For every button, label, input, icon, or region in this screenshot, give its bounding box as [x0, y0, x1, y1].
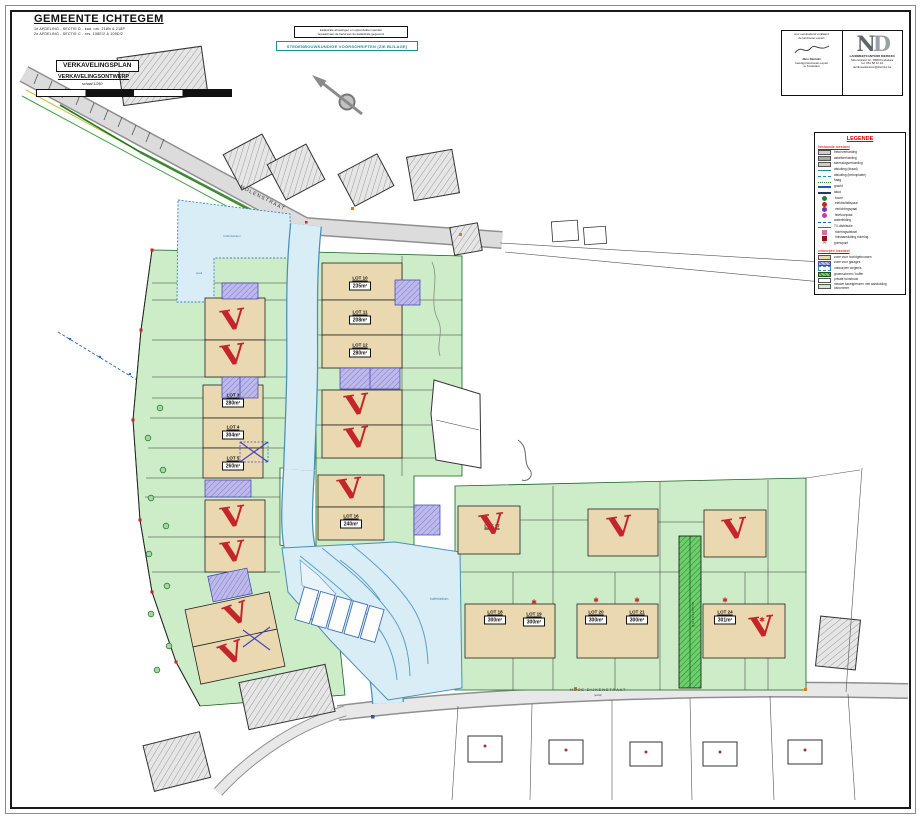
asterisk-mark: ✱ — [634, 597, 640, 605]
lot-area-value: 280m² — [222, 399, 243, 408]
legend-label: grenspunt — [834, 242, 848, 246]
sw-tan-symbol — [818, 162, 831, 167]
ln-brown-symbol — [818, 227, 831, 228]
surveyor-box: voor eensluidend verklaard, de landmeter… — [781, 30, 903, 96]
sw-lightgreen-symbol — [818, 284, 831, 289]
legend-title: LEGENDE — [818, 136, 902, 142]
legend-existing-title: bestaande toestand — [818, 145, 902, 149]
legend-label: telefoonpaal — [835, 214, 852, 218]
legend-existing-rows: betonverhardingasfaltverhardingsteenslag… — [818, 150, 902, 247]
lot-label: LOT 5 — [227, 456, 240, 461]
lot-area-value: 260m² — [222, 462, 243, 471]
surveyor-line: te Koekelare — [783, 65, 841, 69]
legend-label: afsluiting (draad) — [834, 168, 858, 172]
subdivision-plan-sheet: MOLENSTRAAT HOGE DIJKENSTRAAT (asfalt) b… — [0, 0, 921, 819]
cadastral-note-line-2: bepaald aan de hand van de kadastrale ge… — [297, 32, 405, 36]
legend-proposed-title: ontworpen toestand — [818, 249, 902, 253]
lot-area-value: 300m² — [585, 616, 606, 625]
lots-layer: VVLOT 3280m²LOT 4304m²LOT 5260m²VVVVLOT … — [0, 0, 921, 819]
lot-label: LOT 21 — [629, 610, 644, 615]
lot-label: LOT 19 — [526, 612, 541, 617]
lot-lot-12[interactable]: LOT 12280m² — [345, 343, 375, 358]
sw-beige-symbol — [818, 255, 831, 260]
scale-bar — [36, 89, 232, 97]
lot-lot-20[interactable]: LOT 20300m²✱ — [581, 610, 611, 625]
dot-red-symbol — [822, 202, 827, 207]
sold-mark: V — [220, 594, 254, 633]
legend: LEGENDE bestaande toestand betonverhardi… — [814, 132, 906, 295]
lot-label: LOT 20 — [588, 610, 603, 615]
legend-label: ontworpen wegenis — [834, 267, 861, 271]
lot-label: LOT 10 — [352, 276, 367, 281]
cadastral-line-2: 2e AFDELING - SECTIE C - nrs. 138E/2 & 1… — [34, 32, 244, 36]
lot-label: LOT 12 — [352, 343, 367, 348]
legend-label: betonverharding — [834, 151, 857, 155]
legend-label: zone voor hoofdgebouwen — [834, 256, 872, 260]
sold-mark: V — [219, 337, 248, 373]
legend-label: waterleiding — [834, 219, 851, 223]
legend-label: gracht — [834, 185, 843, 189]
plan-type-label: VERKAVELINGSPLAN — [56, 60, 139, 72]
lot-lot-16[interactable]: LOT 16240m² — [336, 514, 366, 529]
lot-lot-8[interactable]: V — [222, 613, 251, 619]
x-red-symbol — [821, 241, 828, 246]
sold-mark: V — [343, 420, 372, 456]
legend-proposed-rows: zone voor hoofdgebouwenzone voor garages… — [818, 255, 902, 291]
ln-blue-dot-symbol — [818, 222, 831, 223]
sold-mark: V — [215, 633, 249, 672]
lot-lot-21[interactable]: LOT 21300m²✱ — [622, 610, 652, 625]
asterisk-mark: ✱ — [531, 599, 537, 607]
lot-label: LOT 16 — [343, 514, 358, 519]
sold-mark: V — [606, 509, 635, 545]
lot-label: LOT 3 — [227, 393, 240, 398]
legend-label: asfaltverharding — [834, 157, 857, 161]
ln-green-scallop-symbol — [818, 182, 831, 183]
lot-area-value: 240m² — [340, 520, 361, 529]
title-block: GEMEENTE ICHTEGEM 1e AFDELING - SECTIE D… — [34, 13, 244, 97]
plan-subtitle: VERKAVELINGSONTWERP — [58, 74, 244, 80]
lot-lot-3[interactable]: LOT 3280m² — [218, 393, 248, 408]
lot-area-value: 280m² — [349, 349, 370, 358]
lot-area-value: 300m² — [626, 616, 647, 625]
legend-label: verlichtingspaal — [835, 208, 857, 212]
sw-purple-symbol — [818, 261, 831, 266]
sold-mark: V — [748, 609, 777, 645]
sw-white-symbol — [818, 278, 831, 283]
lot-lot-9[interactable]: V — [217, 652, 246, 658]
sw-greenhatch-symbol — [818, 272, 831, 277]
legend-label: TV-distributie — [834, 225, 853, 229]
surveyor-signature-cell: voor eensluidend verklaard, de landmeter… — [782, 31, 842, 95]
legend-label: haag — [834, 179, 841, 183]
legend-label: boom — [835, 197, 843, 201]
sold-mark: V — [343, 387, 372, 423]
lot-lot-24[interactable]: LOT 24301m²✱ — [710, 610, 740, 625]
asterisk-mark: ✱ — [722, 597, 728, 605]
lot-lot-11[interactable]: LOT 11208m² — [345, 310, 375, 325]
scale-label: schaal 1/250 — [82, 82, 244, 86]
office-email: landmeetkantoor@dierickx.be — [844, 66, 902, 70]
lot-lot-18[interactable]: LOT 18300m² — [480, 610, 510, 625]
legend-label: nieuwe kavelgrenzen met aanduiding lotnu… — [834, 283, 902, 290]
ln-blue-double-symbol — [818, 186, 831, 188]
sw-gray-symbol — [818, 150, 831, 155]
cadastral-note: kadastrale afmetingen en oppervlakten we… — [294, 26, 408, 38]
lot-area-value: 235m² — [349, 282, 370, 291]
dot-green-symbol — [822, 196, 827, 201]
signature-icon — [792, 41, 832, 57]
sold-mark: V — [219, 302, 248, 338]
lot-label: LOT 18 — [487, 610, 502, 615]
ln-teal-symbol — [818, 170, 831, 171]
lot-label: LOT 24 — [717, 610, 732, 615]
legend-label: groenscherm / buffer — [834, 273, 863, 277]
lot-label: LOT 4 — [227, 425, 240, 430]
regulations-note: STEDENBOUWKUNDIGE VOORSCHRIFTEN (ZIE BIJ… — [276, 41, 418, 51]
lot-lot-17[interactable]: LOT 17V — [477, 524, 507, 529]
lot-lot-4[interactable]: LOT 4304m² — [218, 425, 248, 440]
ln-navy-symbol — [818, 192, 831, 194]
asterisk-mark: ✱ — [593, 597, 599, 605]
sold-mark: V — [219, 499, 248, 535]
municipality-title: GEMEENTE ICHTEGEM — [34, 13, 244, 25]
sw-bluedash-symbol — [818, 266, 831, 271]
legend-label: elektriciteitspaal — [835, 202, 858, 206]
lot-area-value: 208m² — [349, 316, 370, 325]
lot-lot-10[interactable]: LOT 10235m² — [345, 276, 375, 291]
sold-mark: V — [336, 471, 365, 507]
legend-label: steenslagverharding — [834, 162, 863, 166]
legend-label: zone voor garages — [834, 261, 860, 265]
sw-darkgray-symbol — [818, 156, 831, 161]
sold-mark: V — [721, 511, 750, 547]
lot-label: LOT 11 — [352, 310, 367, 315]
asterisk-mark: ✱ — [759, 616, 765, 624]
cadastral-line-1: 1e AFDELING - SECTIE D - kad. nrs. 218N … — [34, 27, 244, 31]
surveyor-line: de landmeter-expert: — [783, 37, 841, 41]
lot-area-value: 300m² — [484, 616, 505, 625]
ln-teal-dash-symbol — [818, 176, 831, 177]
lot-area-value: 300m² — [523, 618, 544, 627]
lot-lot-19[interactable]: LOT 19300m²✱ — [519, 612, 549, 627]
legend-label: rioleringsdeksel — [835, 231, 857, 235]
legend-label: talud — [834, 191, 841, 195]
sq-pink-symbol — [822, 230, 827, 235]
dot-magenta-symbol — [822, 213, 827, 218]
legend-label: afsluiting (betonplaten) — [834, 174, 866, 178]
sold-mark: V — [219, 534, 248, 570]
legend-label: huisaansluiting riolering — [835, 236, 868, 240]
lot-area-value: 304m² — [222, 431, 243, 440]
lot-label: LOT 17 — [484, 524, 499, 529]
legend-row: nieuwe kavelgrenzen met aanduiding lotnu… — [818, 283, 902, 290]
legend-row: grenspunt — [818, 241, 902, 247]
nd-logo: ND — [844, 33, 902, 55]
lot-lot-5[interactable]: LOT 5260m² — [218, 456, 248, 471]
lot-area-value: 301m² — [714, 616, 735, 625]
surveyor-office-cell: ND LANDMEETKANTOOR DIERICKX Moerestraat … — [842, 31, 903, 95]
dot-purple-symbol — [822, 207, 827, 212]
